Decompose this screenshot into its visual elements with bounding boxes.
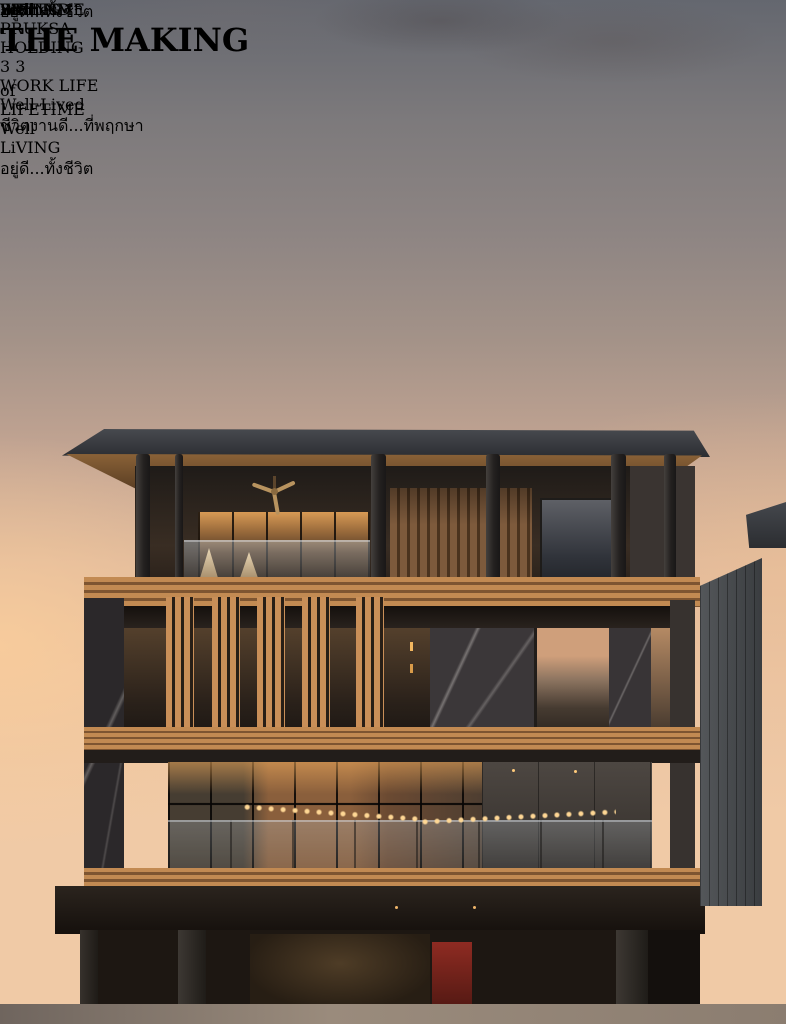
house-roof [62,429,710,457]
column [611,454,626,580]
balcony-glass-railing [168,820,652,871]
middle-floor-window [534,628,612,728]
ceiling-fan [250,476,298,514]
title-initial-t: T [0,21,24,59]
column [664,454,676,580]
thai-tagline: อยู่ดี...ทั้งชีวิต [0,157,249,182]
neighbor-soffit [752,546,786,562]
wood-louver-group [166,597,194,728]
wood-louver-group [212,597,240,728]
wood-louver-group [356,597,384,728]
carport-column [80,930,98,1008]
red-entry-door [432,942,472,1004]
carport-wall-glow [250,934,430,1008]
terrace-wood-slat-wall [390,488,532,580]
column [175,454,183,580]
title-of: of [0,81,16,100]
column [486,454,500,580]
carport-column [178,930,206,1008]
title-initial-m: M [90,21,125,59]
column [136,454,150,580]
column [371,454,386,580]
poster-cover: P PRUKSA HOLDING 3 3 WORK LIFE Well-Live… [0,0,786,1024]
marble-panel [609,628,651,728]
terrace-right-wall [630,466,695,580]
title-rest-aking: AKING [125,21,249,59]
terrace-window [540,498,614,584]
driveway [0,1004,786,1024]
cover-title-block: THE MAKING of LIFETIME Well LiVING อยู่ด… [0,0,249,182]
corner-thai-tagline: อยู่ดี...ทั้งชีวิต [0,0,93,25]
wood-louver-group [257,597,285,728]
title-rest-he: HE [24,21,90,59]
title-the-making: THE MAKING [0,21,249,59]
middle-floor-window [651,628,670,728]
side-metal-tower [700,558,762,906]
wood-base-band [84,868,700,888]
brand-living: LiVING [0,138,249,157]
wood-louver-group [302,597,330,728]
carport-dark-section [648,930,700,1008]
wood-floor-band [84,727,700,751]
marble-panel [430,628,534,728]
brand-lifetime: LIFETIME [0,100,249,119]
floor-slab [55,886,705,934]
of-divider: of [0,81,249,100]
carport-column [616,930,648,1008]
brand-well-script: Well [0,119,249,138]
